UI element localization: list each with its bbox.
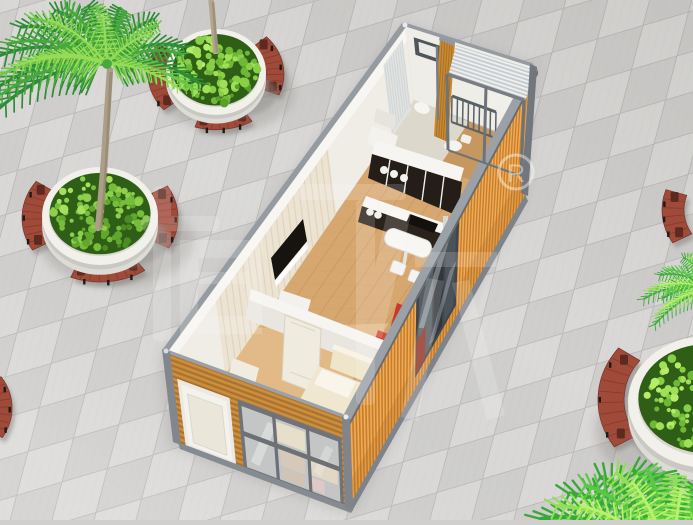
svg-text:R: R <box>507 160 525 188</box>
